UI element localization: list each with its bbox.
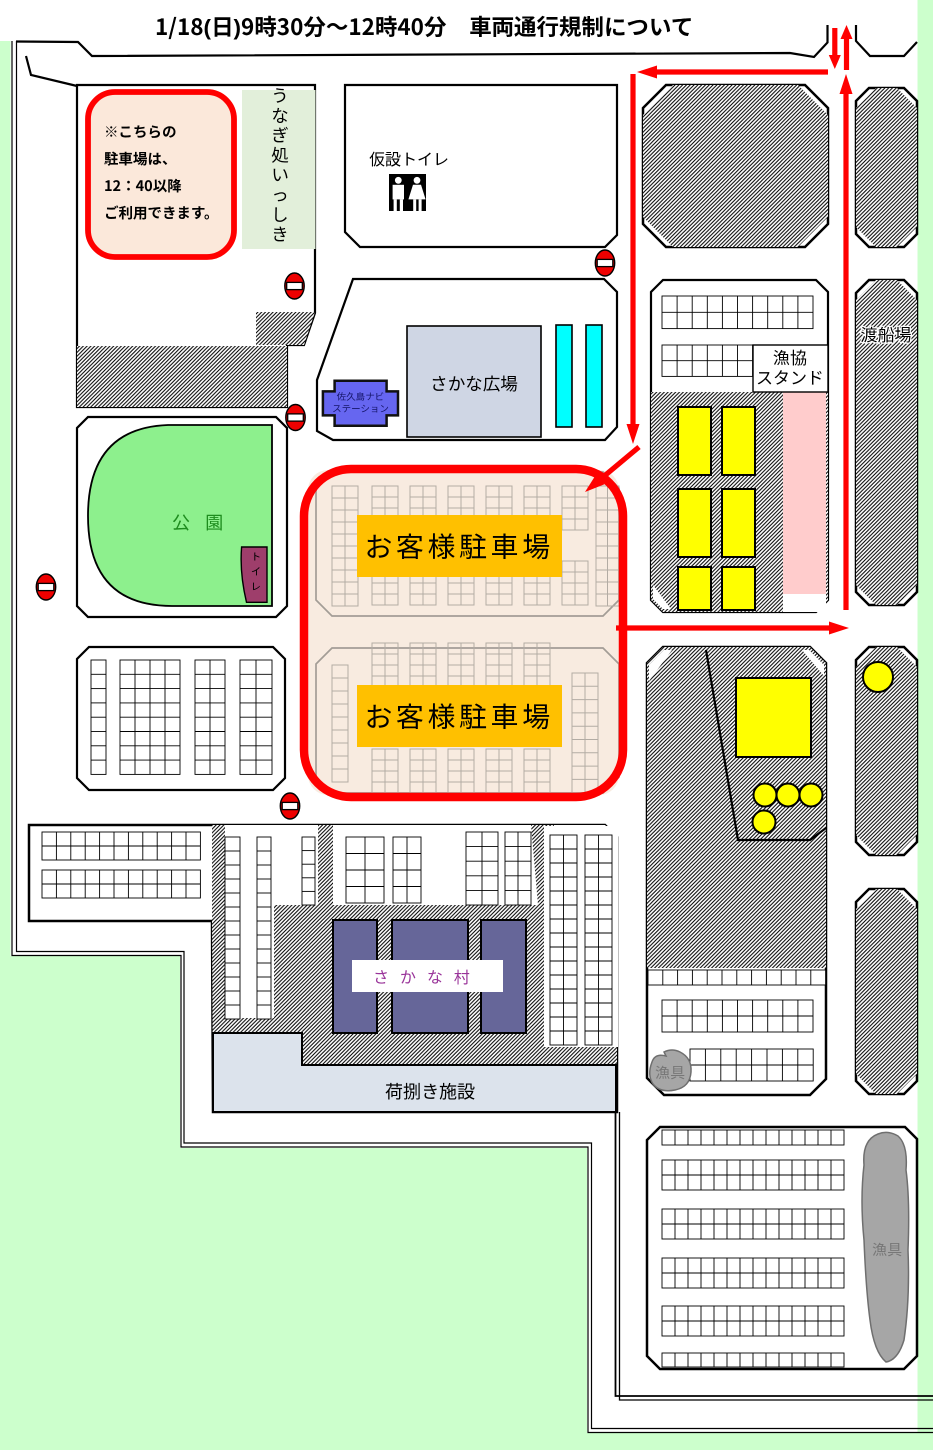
svg-text:1/18(日)9時30分～12時40分 車両通行規制について: 1/18(日)9時30分～12時40分 車両通行規制について [155,10,693,42]
svg-text:き: き [271,222,289,247]
svg-text:漁具: 漁具 [655,1062,685,1083]
svg-text:さかな広場: さかな広場 [430,371,518,396]
svg-text:漁具: 漁具 [872,1239,902,1260]
svg-text:スタンド: スタンド [756,364,824,389]
svg-text:12：40以降: 12：40以降 [104,175,182,196]
svg-text:荷捌き施設: 荷捌き施設 [385,1078,476,1104]
svg-text:お客様駐車場: お客様駐車場 [364,526,553,566]
svg-text:公: 公 [172,509,190,535]
svg-text:お客様駐車場: お客様駐車場 [364,696,553,736]
svg-text:さかな村: さかな村 [373,964,481,988]
svg-text:ステーション: ステーション [332,401,389,415]
svg-text:ト: ト [251,548,261,563]
svg-text:※こちらの: ※こちらの [104,121,177,142]
svg-text:レ: レ [251,578,261,593]
svg-text:仮設トイレ: 仮設トイレ [369,146,449,170]
svg-text:ご利用できます。: ご利用できます。 [104,202,219,223]
svg-text:イ: イ [251,563,261,578]
svg-text:渡船場: 渡船場 [861,321,912,346]
svg-text:駐車場は、: 駐車場は、 [104,148,177,169]
svg-text:園: 園 [205,509,223,535]
